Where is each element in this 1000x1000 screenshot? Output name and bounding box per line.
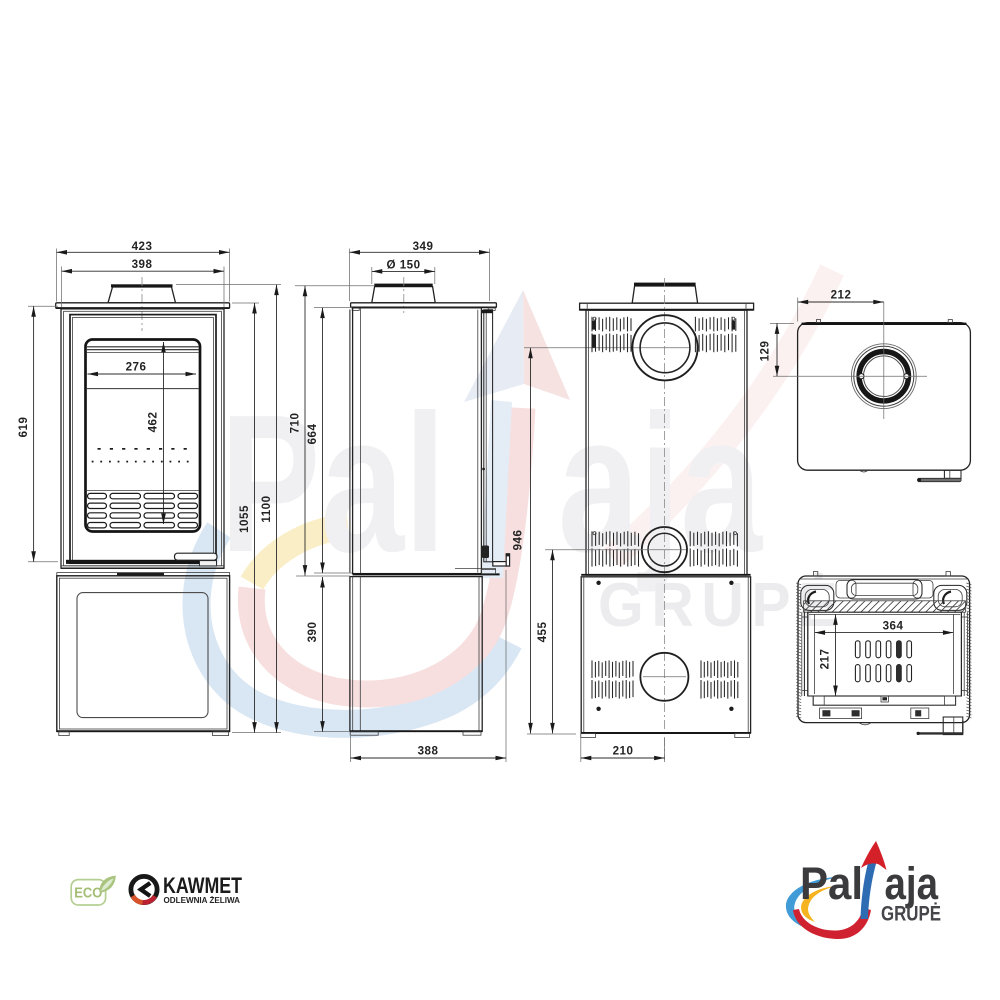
svg-text:388: 388: [418, 745, 439, 758]
svg-text:390: 390: [306, 622, 319, 643]
svg-text:Pal: Pal: [220, 374, 446, 593]
svg-text:664: 664: [306, 424, 319, 445]
svg-text:GRUPĖ: GRUPĖ: [881, 903, 941, 926]
svg-text:ODLEWNIA ŻELIWA: ODLEWNIA ŻELIWA: [164, 895, 241, 905]
svg-text:455: 455: [536, 622, 549, 643]
svg-text:aja: aja: [558, 374, 763, 593]
svg-text:1100: 1100: [260, 495, 273, 522]
svg-text:Pal: Pal: [800, 858, 863, 909]
svg-text:ECO: ECO: [74, 886, 102, 902]
svg-text:462: 462: [147, 412, 160, 433]
svg-text:619: 619: [17, 417, 30, 438]
svg-text:KAWMET: KAWMET: [163, 873, 242, 898]
svg-text:212: 212: [831, 289, 852, 302]
svg-text:349: 349: [413, 240, 434, 253]
svg-text:364: 364: [883, 620, 904, 633]
svg-text:aja: aja: [885, 858, 939, 909]
svg-text:276: 276: [126, 361, 147, 374]
svg-text:1055: 1055: [238, 505, 251, 533]
svg-text:398: 398: [132, 258, 153, 271]
svg-text:Ø 150: Ø 150: [386, 259, 420, 272]
svg-text:423: 423: [132, 240, 153, 253]
svg-text:217: 217: [819, 649, 832, 670]
svg-text:129: 129: [759, 341, 772, 362]
svg-text:210: 210: [613, 745, 634, 758]
svg-text:710: 710: [288, 413, 301, 434]
svg-text:946: 946: [512, 530, 525, 551]
